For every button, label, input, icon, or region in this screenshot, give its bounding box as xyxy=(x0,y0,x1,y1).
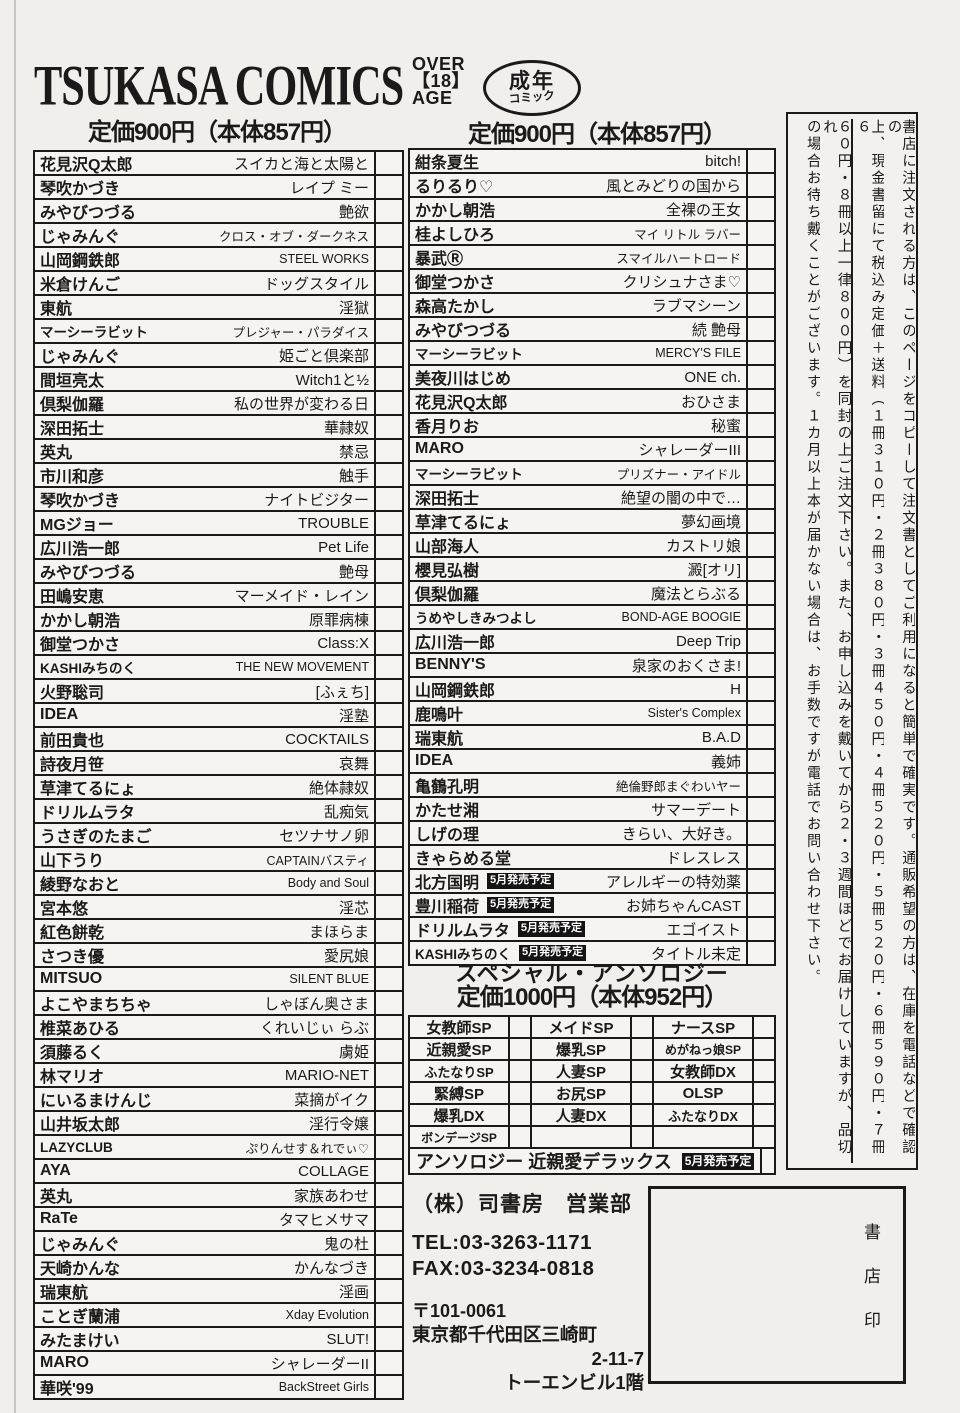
table-row: 美夜川はじめONE ch. xyxy=(408,364,776,390)
publisher-address-line1: 東京都千代田区三崎町 xyxy=(412,1323,644,1347)
anthology-row: 爆乳DX人妻DXふたなりDX xyxy=(408,1103,776,1127)
order-quantity-cell[interactable] xyxy=(376,416,402,438)
scan-edge-line xyxy=(14,0,16,1413)
order-quantity-cell[interactable] xyxy=(748,174,774,196)
book-title: H xyxy=(730,681,741,698)
book-title: 秘蜜 xyxy=(711,415,741,436)
row-main-cell: 宮本悠淫芯 xyxy=(35,896,376,918)
row-main-cell: マーシーラビットプリズナー・アイドル xyxy=(410,462,748,484)
table-row: 琴吹かづきレイプ ミー xyxy=(33,174,404,200)
book-title: 華隷奴 xyxy=(324,417,369,438)
author-name: 間垣亮太 xyxy=(40,368,104,390)
order-quantity-cell[interactable] xyxy=(630,1015,654,1039)
row-main-cell: 前田貴也COCKTAILS xyxy=(35,728,376,750)
row-main-cell: 米倉けんごドッグスタイル xyxy=(35,272,376,294)
book-title: ONE ch. xyxy=(684,369,741,386)
order-quantity-cell[interactable] xyxy=(748,678,774,700)
price-header-left: 定価900円（本体857円） xyxy=(33,112,401,147)
order-quantity-cell[interactable] xyxy=(748,822,774,844)
row-main-cell: じゃみんぐクロス・オブ・ダークネス xyxy=(35,224,376,246)
author-name: かかし朝浩 xyxy=(415,198,495,220)
table-row: 豊川稲荷5月発売予定お姉ちゃんCAST xyxy=(408,892,776,918)
row-main-cell: かかし朝浩全裸の王女 xyxy=(410,198,748,220)
order-quantity-cell[interactable] xyxy=(376,1088,402,1110)
order-quantity-cell[interactable] xyxy=(376,392,402,414)
table-row: きゃらめる堂ドレスレス xyxy=(408,844,776,870)
table-row: 瑞東航淫画 xyxy=(33,1278,404,1304)
order-quantity-cell[interactable] xyxy=(748,798,774,820)
order-quantity-cell[interactable] xyxy=(748,846,774,868)
order-quantity-cell[interactable] xyxy=(376,656,402,678)
order-quantity-cell[interactable] xyxy=(748,582,774,604)
book-title: 鬼の杜 xyxy=(324,1233,369,1254)
author-name: 山岡鋼鉄郎 xyxy=(415,678,495,700)
book-title: タマヒメサマ xyxy=(279,1209,369,1230)
author-name: るりるり♡ xyxy=(415,174,493,196)
row-main-cell: じゃみんぐ姫ごと倶楽部 xyxy=(35,344,376,366)
author-name: 須藤るく xyxy=(40,1040,104,1062)
row-main-cell: 亀鶴孔明絶倫野郎まぐわいヤー xyxy=(410,774,748,796)
order-quantity-cell[interactable] xyxy=(376,440,402,462)
table-row: 英丸禁忌 xyxy=(33,438,404,464)
table-row: RaTeタマヒメサマ xyxy=(33,1206,404,1232)
publisher-postal-code: 〒101-0061 xyxy=(412,1297,644,1323)
order-quantity-cell[interactable] xyxy=(376,752,402,774)
order-quantity-cell[interactable] xyxy=(748,870,774,892)
author-name: 深田拓士 xyxy=(40,416,104,438)
order-quantity-cell[interactable] xyxy=(376,176,402,198)
order-quantity-cell[interactable] xyxy=(748,630,774,652)
table-row: マーシーラビットMERCY'S FILE xyxy=(408,340,776,366)
book-title: 乱痴気 xyxy=(324,801,369,822)
order-quantity-cell[interactable] xyxy=(376,1112,402,1134)
row-main-cell: 林マリオMARIO-NET xyxy=(35,1064,376,1086)
author-name: 草津てるにょ xyxy=(40,776,136,798)
order-quantity-cell[interactable] xyxy=(748,534,774,556)
row-main-cell: ドリルムラタ乱痴気 xyxy=(35,800,376,822)
adult-comic-badge: 成年 コミック xyxy=(483,60,581,116)
book-title: 菜摘がイク xyxy=(294,1089,369,1110)
order-quantity-cell[interactable] xyxy=(376,968,402,990)
order-quantity-cell[interactable] xyxy=(376,1184,402,1206)
table-row: にいるまけんじ菜摘がイク xyxy=(33,1086,404,1112)
anthology-label: 女教師DX xyxy=(652,1059,754,1083)
book-title: MERCY'S FILE xyxy=(655,346,741,360)
order-quantity-cell[interactable] xyxy=(748,462,774,484)
table-row: 御堂つかさクリシュナさま♡ xyxy=(408,268,776,294)
row-main-cell: かかし朝浩原罪病棟 xyxy=(35,608,376,630)
order-quantity-cell[interactable] xyxy=(376,536,402,558)
order-quantity-cell[interactable] xyxy=(748,702,774,724)
book-title: おひさま xyxy=(681,391,741,412)
order-quantity-cell[interactable] xyxy=(376,1256,402,1278)
anthology-label: OLSP xyxy=(652,1081,754,1105)
order-quantity-cell[interactable] xyxy=(748,270,774,292)
anthology-label xyxy=(530,1125,632,1149)
order-quantity-cell[interactable] xyxy=(376,248,402,270)
row-main-cell: 東航淫獄 xyxy=(35,296,376,318)
row-main-cell: マーシーラビットMERCY'S FILE xyxy=(410,342,748,364)
order-quantity-cell[interactable] xyxy=(376,368,402,390)
table-row: 桂よしひろマイ リトル ラバー xyxy=(408,220,776,246)
anthology-label: 人妻DX xyxy=(530,1103,632,1127)
row-main-cell: 広川浩一郎Pet Life xyxy=(35,536,376,558)
table-row: 山岡鋼鉄郎STEEL WORKS xyxy=(33,246,404,272)
author-name: じゃみんぐ xyxy=(40,1232,120,1254)
table-row: 間垣亮太Witch1と½ xyxy=(33,366,404,392)
row-main-cell: 豊川稲荷5月発売予定お姉ちゃんCAST xyxy=(410,894,748,916)
order-quantity-cell[interactable] xyxy=(376,1040,402,1062)
author-name: KASHIみちのく xyxy=(40,657,136,677)
author-name: みたまけい xyxy=(40,1328,120,1350)
publisher-logo: TSUKASA COMICS xyxy=(34,52,403,118)
mail-order-instructions: 書店に注文される方は、このページをコピーして注文書としてご利用になると簡単で確実… xyxy=(786,112,918,1170)
order-quantity-cell[interactable] xyxy=(748,198,774,220)
order-quantity-cell[interactable] xyxy=(748,390,774,412)
row-main-cell: KASHIみちのくTHE NEW MOVEMENT xyxy=(35,656,376,678)
author-name: よこやまちちゃ xyxy=(40,992,152,1014)
author-name: 瑞東航 xyxy=(415,726,463,748)
author-name: 御堂つかさ xyxy=(40,632,120,654)
order-quantity-cell[interactable] xyxy=(630,1103,654,1127)
row-main-cell: 倶梨伽羅魔法とらぶる xyxy=(410,582,748,604)
order-quantity-cell[interactable] xyxy=(376,992,402,1014)
author-name: 詩夜月笹 xyxy=(40,752,104,774)
author-name: KASHIみちのく xyxy=(415,943,511,963)
order-quantity-cell[interactable] xyxy=(376,272,402,294)
row-main-cell: 御堂つかさClass:X xyxy=(35,632,376,654)
release-date-badge: 5月発売予定 xyxy=(518,921,585,936)
row-main-cell: MGジョーTROUBLE xyxy=(35,512,376,534)
author-name: マーシーラビット xyxy=(415,463,523,483)
author-name: きゃらめる堂 xyxy=(415,846,511,868)
order-quantity-cell[interactable] xyxy=(748,246,774,268)
row-main-cell: じゃみんぐ鬼の杜 xyxy=(35,1232,376,1254)
row-main-cell: みやびつづる艶欲 xyxy=(35,200,376,222)
order-quantity-cell[interactable] xyxy=(748,366,774,388)
order-quantity-cell[interactable] xyxy=(376,704,402,726)
author-name: 林マリオ xyxy=(40,1064,104,1086)
table-row: 山岡鋼鉄郎H xyxy=(408,676,776,702)
anthology-label: 爆乳SP xyxy=(530,1037,632,1061)
author-name: 琴吹かづき xyxy=(40,176,120,198)
author-name: 美夜川はじめ xyxy=(415,366,511,388)
author-name: みやびつづる xyxy=(40,200,136,222)
order-quantity-cell[interactable] xyxy=(748,558,774,580)
row-main-cell: 綾野なおとBody and Soul xyxy=(35,872,376,894)
order-quantity-cell[interactable] xyxy=(376,464,402,486)
author-name: じゃみんぐ xyxy=(40,344,120,366)
row-main-cell: 英丸家族あわせ xyxy=(35,1184,376,1206)
author-name: 山岡鋼鉄郎 xyxy=(40,248,120,270)
book-title: レイプ ミー xyxy=(290,177,369,198)
order-quantity-cell[interactable] xyxy=(376,944,402,966)
order-quantity-cell[interactable] xyxy=(376,920,402,942)
table-row: 市川和彦触手 xyxy=(33,462,404,488)
order-quantity-cell[interactable] xyxy=(376,1016,402,1038)
order-quantity-cell[interactable] xyxy=(376,152,402,174)
order-quantity-cell[interactable] xyxy=(376,1376,402,1398)
order-quantity-cell[interactable] xyxy=(748,318,774,340)
row-main-cell: 深田拓士絶望の闇の中で… xyxy=(410,486,748,508)
order-note-column: の場合お待ち戴くことがございます。１カ月以上本が届かない場合は、お手数ですが電話… xyxy=(789,119,820,1163)
table-row: 山井坂太郎淫行令嬢 xyxy=(33,1110,404,1136)
table-row: MGジョーTROUBLE xyxy=(33,510,404,536)
table-row: 深田拓士絶望の闇の中で… xyxy=(408,484,776,510)
order-quantity-cell[interactable] xyxy=(752,1103,776,1127)
order-quantity-cell[interactable] xyxy=(376,824,402,846)
order-quantity-cell[interactable] xyxy=(376,200,402,222)
table-row: 天崎かんなかんなづき xyxy=(33,1254,404,1280)
order-quantity-cell[interactable] xyxy=(376,872,402,894)
row-main-cell: しげの理きらい、大好き。 xyxy=(410,822,748,844)
book-title: THE NEW MOVEMENT xyxy=(236,660,369,674)
row-main-cell: さつき優愛尻娘 xyxy=(35,944,376,966)
author-name: 田嶋安恵 xyxy=(40,584,104,606)
book-title: プレジャー・パラダイス xyxy=(232,322,369,341)
order-quantity-cell[interactable] xyxy=(748,774,774,796)
row-main-cell: 椎菜あひるくれいじぃ らぶ xyxy=(35,1016,376,1038)
row-main-cell: るりるり♡風とみどりの国から xyxy=(410,174,748,196)
table-row: 米倉けんごドッグスタイル xyxy=(33,270,404,296)
order-quantity-cell[interactable] xyxy=(748,654,774,676)
book-title: クリシュナさま♡ xyxy=(623,271,741,292)
order-quantity-cell[interactable] xyxy=(748,918,774,940)
row-main-cell: 琴吹かづきナイトビジター xyxy=(35,488,376,510)
book-title: COCKTAILS xyxy=(285,731,369,748)
book-title: アレルギーの特効薬 xyxy=(606,871,741,892)
order-quantity-cell[interactable] xyxy=(752,1081,776,1105)
order-quantity-cell[interactable] xyxy=(748,150,774,172)
order-quantity-cell[interactable] xyxy=(376,584,402,606)
author-name: 花見沢Q太郎 xyxy=(40,152,132,174)
book-title: 家族あわせ xyxy=(294,1185,369,1206)
row-main-cell: 倶梨伽羅私の世界が変わる日 xyxy=(35,392,376,414)
release-date-badge: 5月発売予定 xyxy=(682,1153,755,1169)
order-note-column: ６０円・８冊以上一律８００円）を同封の上ご注文下さい。また、お申し込みを戴いてか… xyxy=(820,119,851,1163)
order-quantity-cell[interactable] xyxy=(748,510,774,532)
order-quantity-cell[interactable] xyxy=(748,726,774,748)
adult-comic-line1: 成年 xyxy=(509,71,555,92)
publisher-fax: FAX:03-3234-0818 xyxy=(412,1256,644,1282)
order-quantity-cell[interactable] xyxy=(748,414,774,436)
order-quantity-cell[interactable] xyxy=(376,224,402,246)
order-quantity-cell[interactable] xyxy=(630,1037,654,1061)
order-quantity-cell[interactable] xyxy=(508,1037,532,1061)
row-main-cell: 花見沢Q太郎スイカと海と太陽と xyxy=(35,152,376,174)
anthology-label: ナースSP xyxy=(652,1015,754,1039)
book-title: しゃぼん奥さま xyxy=(264,993,369,1014)
row-main-cell: 田嶋安恵マーメイド・レイン xyxy=(35,584,376,606)
order-quantity-cell[interactable] xyxy=(508,1015,532,1039)
order-quantity-cell[interactable] xyxy=(748,342,774,364)
author-name: 英丸 xyxy=(40,1184,72,1206)
order-quantity-cell[interactable] xyxy=(508,1125,532,1149)
author-name: 東航 xyxy=(40,296,72,318)
row-main-cell: 暴武Ⓡスマイルハートロード xyxy=(410,246,748,268)
table-row: マーシーラビットプレジャー・パラダイス xyxy=(33,318,404,344)
anthology-row: 近親愛SP爆乳SPめがねっ娘SP xyxy=(408,1037,776,1061)
table-row: 鹿鳴叶Sister's Complex xyxy=(408,700,776,726)
author-name: かかし朝浩 xyxy=(40,608,120,630)
order-quantity-cell[interactable] xyxy=(508,1081,532,1105)
order-quantity-cell[interactable] xyxy=(752,1037,776,1061)
order-quantity-cell[interactable] xyxy=(376,800,402,822)
author-name: MGジョー xyxy=(40,512,114,534)
row-main-cell: ドリルムラタ5月発売予定エゴイスト xyxy=(410,918,748,940)
book-title: エゴイスト xyxy=(666,919,741,940)
row-main-cell: 詩夜月笹哀舞 xyxy=(35,752,376,774)
book-title: 艶欲 xyxy=(339,201,369,222)
table-row: よこやまちちゃしゃぼん奥さま xyxy=(33,990,404,1016)
order-quantity-cell[interactable] xyxy=(376,1160,402,1182)
anthology-price: 定価1000円（本体952円） xyxy=(408,985,776,1011)
table-row: かかし朝浩全裸の王女 xyxy=(408,196,776,222)
row-main-cell: MAROシャレーダーII xyxy=(35,1352,376,1374)
order-quantity-cell[interactable] xyxy=(630,1059,654,1083)
deluxe-main-cell: アンソロジー 近親愛デラックス5月発売予定 xyxy=(408,1147,762,1175)
row-main-cell: 瑞東航B.A.D xyxy=(410,726,748,748)
order-quantity-cell[interactable] xyxy=(748,438,774,460)
book-title: くれいじぃ らぶ xyxy=(260,1017,369,1038)
author-name: みやびつづる xyxy=(415,318,511,340)
order-quantity-cell[interactable] xyxy=(752,1125,776,1149)
row-main-cell: 須藤るく虜姫 xyxy=(35,1040,376,1062)
table-row: さつき優愛尻娘 xyxy=(33,942,404,968)
row-main-cell: 瑞東航淫画 xyxy=(35,1280,376,1302)
row-main-cell: 花見沢Q太郎おひさま xyxy=(410,390,748,412)
order-quantity-cell[interactable] xyxy=(376,896,402,918)
table-row: みやびつづる艶母 xyxy=(33,558,404,584)
anthology-label: めがねっ娘SP xyxy=(652,1037,754,1061)
table-row: 深田拓士華隷奴 xyxy=(33,414,404,440)
author-name: さつき優 xyxy=(40,944,104,966)
order-quantity-cell[interactable] xyxy=(376,1136,402,1158)
book-title: シャレーダーII xyxy=(271,1353,369,1374)
order-quantity-cell[interactable] xyxy=(376,608,402,630)
author-name: 草津てるにょ xyxy=(415,510,511,532)
row-main-cell: BENNY'S泉家のおくさま! xyxy=(410,654,748,676)
book-title: CAPTAINバスティ xyxy=(267,850,370,869)
table-row: 倶梨伽羅私の世界が変わる日 xyxy=(33,390,404,416)
table-row: ドリルムラタ5月発売予定エゴイスト xyxy=(408,916,776,942)
order-quantity-cell[interactable] xyxy=(376,1280,402,1302)
author-name: 紺条夏生 xyxy=(415,150,479,172)
author-name: BENNY'S xyxy=(415,656,485,674)
over-18-badge: OVER 【18】 AGE xyxy=(412,56,470,107)
table-row: 草津てるにょ夢幻画境 xyxy=(408,508,776,534)
order-quantity-cell[interactable] xyxy=(748,222,774,244)
row-main-cell: うめやしきみつよしBOND-AGE BOOGIE xyxy=(410,606,748,628)
order-quantity-cell[interactable] xyxy=(376,1232,402,1254)
book-title: Witch1と½ xyxy=(296,369,369,390)
order-quantity-cell[interactable] xyxy=(376,848,402,870)
table-row: 火野聡司[ふぇち] xyxy=(33,678,404,704)
book-title: Body and Soul xyxy=(288,876,369,890)
row-main-cell: 英丸禁忌 xyxy=(35,440,376,462)
author-name: 市川和彦 xyxy=(40,464,104,486)
bookstore-stamp-box[interactable]: 書店印 xyxy=(648,1186,906,1384)
row-main-cell: かたせ湘サマーデート xyxy=(410,798,748,820)
order-quantity-cell[interactable] xyxy=(376,296,402,318)
order-quantity-cell[interactable] xyxy=(376,512,402,534)
table-row: 紅色餅乾まほらま xyxy=(33,918,404,944)
order-quantity-cell[interactable] xyxy=(630,1125,654,1149)
order-quantity-cell[interactable] xyxy=(376,1328,402,1350)
order-quantity-cell[interactable] xyxy=(508,1059,532,1083)
book-title: MARIO-NET xyxy=(285,1067,369,1084)
order-form-page: TSUKASA COMICS OVER 【18】 AGE 成年 コミック 定価9… xyxy=(0,0,960,1413)
author-name: かたせ湘 xyxy=(415,798,479,820)
order-quantity-cell[interactable] xyxy=(748,894,774,916)
table-row: 御堂つかさClass:X xyxy=(33,630,404,656)
order-quantity-cell[interactable] xyxy=(376,728,402,750)
order-quantity-cell[interactable] xyxy=(752,1059,776,1083)
order-quantity-cell[interactable] xyxy=(376,560,402,582)
table-row: みたまけいSLUT! xyxy=(33,1326,404,1352)
table-row: IDEA義姉 xyxy=(408,748,776,774)
order-quantity-cell[interactable] xyxy=(376,1064,402,1086)
order-quantity-cell[interactable] xyxy=(376,1352,402,1374)
order-quantity-cell[interactable] xyxy=(748,294,774,316)
table-row: じゃみんぐクロス・オブ・ダークネス xyxy=(33,222,404,248)
order-quantity-cell[interactable] xyxy=(630,1081,654,1105)
adult-comic-line2: コミック xyxy=(509,91,556,106)
book-title: Class:X xyxy=(317,635,369,652)
order-quantity-cell[interactable] xyxy=(376,1208,402,1230)
author-name: 桂よしひろ xyxy=(415,222,495,244)
table-row: BENNY'S泉家のおくさま! xyxy=(408,652,776,678)
row-main-cell: よこやまちちゃしゃぼん奥さま xyxy=(35,992,376,1014)
order-quantity-cell[interactable] xyxy=(748,942,774,964)
order-quantity-cell[interactable] xyxy=(748,750,774,772)
table-row: MAROシャレーダーII xyxy=(33,1350,404,1376)
order-quantity-cell[interactable] xyxy=(508,1103,532,1127)
anthology-deluxe-row: アンソロジー 近親愛デラックス5月発売予定 xyxy=(408,1147,776,1175)
book-title: 私の世界が変わる日 xyxy=(234,393,369,414)
price-header-right: 定価900円（本体857円） xyxy=(432,114,762,149)
row-main-cell: RaTeタマヒメサマ xyxy=(35,1208,376,1230)
order-quantity-cell[interactable] xyxy=(376,344,402,366)
author-name: 英丸 xyxy=(40,440,72,462)
order-quantity-cell[interactable] xyxy=(748,606,774,628)
table-row: 草津てるにょ絶体隷奴 xyxy=(33,774,404,800)
row-main-cell: 琴吹かづきレイプ ミー xyxy=(35,176,376,198)
table-row: しげの理きらい、大好き。 xyxy=(408,820,776,846)
order-quantity-cell[interactable] xyxy=(376,1304,402,1326)
book-title: 姫ごと倶楽部 xyxy=(279,345,369,366)
table-row: じゃみんぐ姫ごと倶楽部 xyxy=(33,342,404,368)
order-quantity-cell[interactable] xyxy=(376,776,402,798)
order-quantity-cell[interactable] xyxy=(376,680,402,702)
table-row: 香月りお秘蜜 xyxy=(408,412,776,438)
anthology-label: 女教師SP xyxy=(408,1015,510,1039)
order-quantity-cell[interactable] xyxy=(748,486,774,508)
order-quantity-cell[interactable] xyxy=(376,632,402,654)
author-name: みやびつづる xyxy=(40,560,136,582)
table-row: 須藤るく虜姫 xyxy=(33,1038,404,1064)
table-row: AYACOLLAGE xyxy=(33,1158,404,1184)
author-name: 山下うり xyxy=(40,848,104,870)
book-title: ラブマシーン xyxy=(652,295,741,316)
order-quantity-cell[interactable] xyxy=(376,488,402,510)
author-name: 鹿鳴叶 xyxy=(415,702,463,724)
order-quantity-cell[interactable] xyxy=(760,1147,776,1175)
row-main-cell: 北方国明5月発売予定アレルギーの特効薬 xyxy=(410,870,748,892)
order-quantity-cell[interactable] xyxy=(752,1015,776,1039)
author-name: MARO xyxy=(415,440,464,458)
order-quantity-cell[interactable] xyxy=(376,320,402,342)
